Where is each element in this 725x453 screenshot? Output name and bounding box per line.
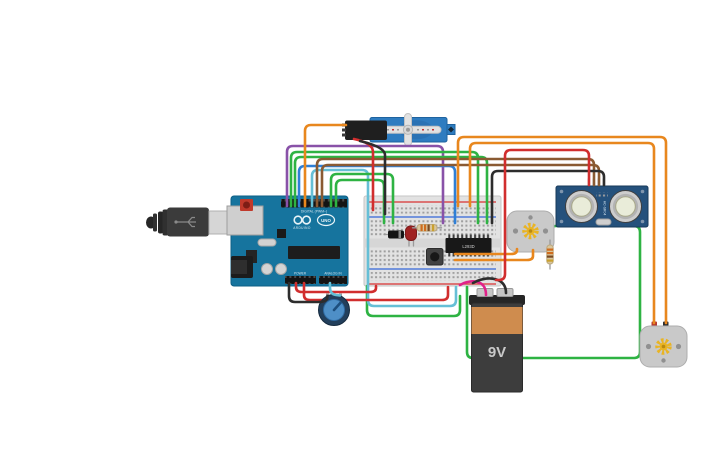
potentiometer[interactable] — [319, 294, 350, 326]
reset-button-cap — [243, 202, 250, 209]
servo-connector-pin — [342, 134, 346, 137]
motor-mount-hole — [676, 344, 681, 349]
servo-connector-pin — [342, 129, 346, 132]
diode-body — [388, 231, 404, 239]
motor-mount-hole — [661, 358, 665, 362]
ultrasonic-sensor-hcsr04[interactable]: HC-SR04 — [556, 179, 648, 228]
sensor-mount-hole — [560, 190, 564, 194]
resistor-band — [547, 252, 553, 254]
resistor-band — [421, 225, 423, 232]
cable-rib — [153, 214, 157, 232]
sensor-oscillator — [596, 219, 611, 225]
usb-cable[interactable] — [146, 208, 232, 237]
resistor-band — [547, 249, 553, 251]
sensor-label: HC-SR04 — [603, 201, 607, 216]
power-jack-opening — [231, 260, 247, 274]
battery-9v[interactable]: 9V — [469, 289, 525, 393]
analog-label: ANALOG IN — [324, 272, 342, 276]
sensor-mount-hole — [560, 220, 564, 224]
sensor-pad-grid — [596, 192, 608, 197]
digital-label: DIGITAL (PWM~) — [301, 210, 327, 214]
motor-gear-center — [529, 229, 533, 233]
capacitor — [262, 264, 273, 275]
sensor-mount-hole — [641, 220, 645, 224]
battery-band — [472, 307, 523, 334]
analog-header-pins — [319, 276, 347, 284]
servo-horn-dot — [387, 129, 389, 131]
motor-mount-hole — [543, 228, 548, 233]
pushbutton-cap — [430, 252, 439, 261]
uno-label: UNO — [321, 218, 331, 223]
motor-mount-hole — [646, 344, 651, 349]
battery-label: 9V — [488, 344, 506, 361]
sensor-mount-hole — [641, 190, 645, 194]
usb-icon-dot — [174, 220, 177, 223]
resistor-band — [432, 225, 434, 232]
resistor-band — [547, 256, 553, 258]
servo-horn-dot — [427, 129, 429, 131]
motor-mount-hole — [513, 228, 518, 233]
motor-mount-hole — [528, 215, 532, 219]
servo-connector[interactable] — [345, 121, 387, 141]
motor-gear-center — [662, 345, 666, 349]
servo-horn-dot — [392, 129, 394, 131]
servo-horn-dot — [432, 129, 434, 131]
sensor-transducer-center — [616, 197, 636, 217]
servo-horn-dot — [417, 129, 419, 131]
servo-horn-dot — [397, 129, 399, 131]
resistor-band — [424, 225, 426, 232]
atmega-chip — [288, 246, 340, 259]
arduino-brand-label: ARDUINO — [293, 226, 311, 230]
sensor-transducer-center — [572, 197, 592, 217]
servo-horn-dot — [422, 129, 424, 131]
chip-label: L293D — [462, 244, 474, 249]
rail-holes-bottom — [369, 272, 496, 281]
servo-horn-hub-center — [406, 128, 410, 132]
tinkercad-circuit-canvas: DIGITAL (PWM~) ARDUINO UNO POWER ANALOG … — [0, 0, 725, 453]
chip-pins-top — [447, 235, 490, 239]
pushbutton[interactable] — [427, 249, 444, 266]
power-label: POWER — [294, 272, 307, 276]
usb-interface-chip — [277, 229, 286, 238]
resistor-band — [547, 260, 553, 262]
capacitor — [276, 264, 287, 275]
crystal-oscillator — [258, 239, 276, 246]
diode-band — [399, 231, 402, 238]
resistor-band — [428, 225, 430, 232]
cable-rib — [158, 212, 163, 234]
circuit-svg: DIGITAL (PWM~) ARDUINO UNO POWER ANALOG … — [0, 0, 725, 453]
dc-motor-2[interactable] — [640, 322, 687, 368]
arduino-uno[interactable]: DIGITAL (PWM~) ARDUINO UNO POWER ANALOG … — [227, 196, 348, 286]
